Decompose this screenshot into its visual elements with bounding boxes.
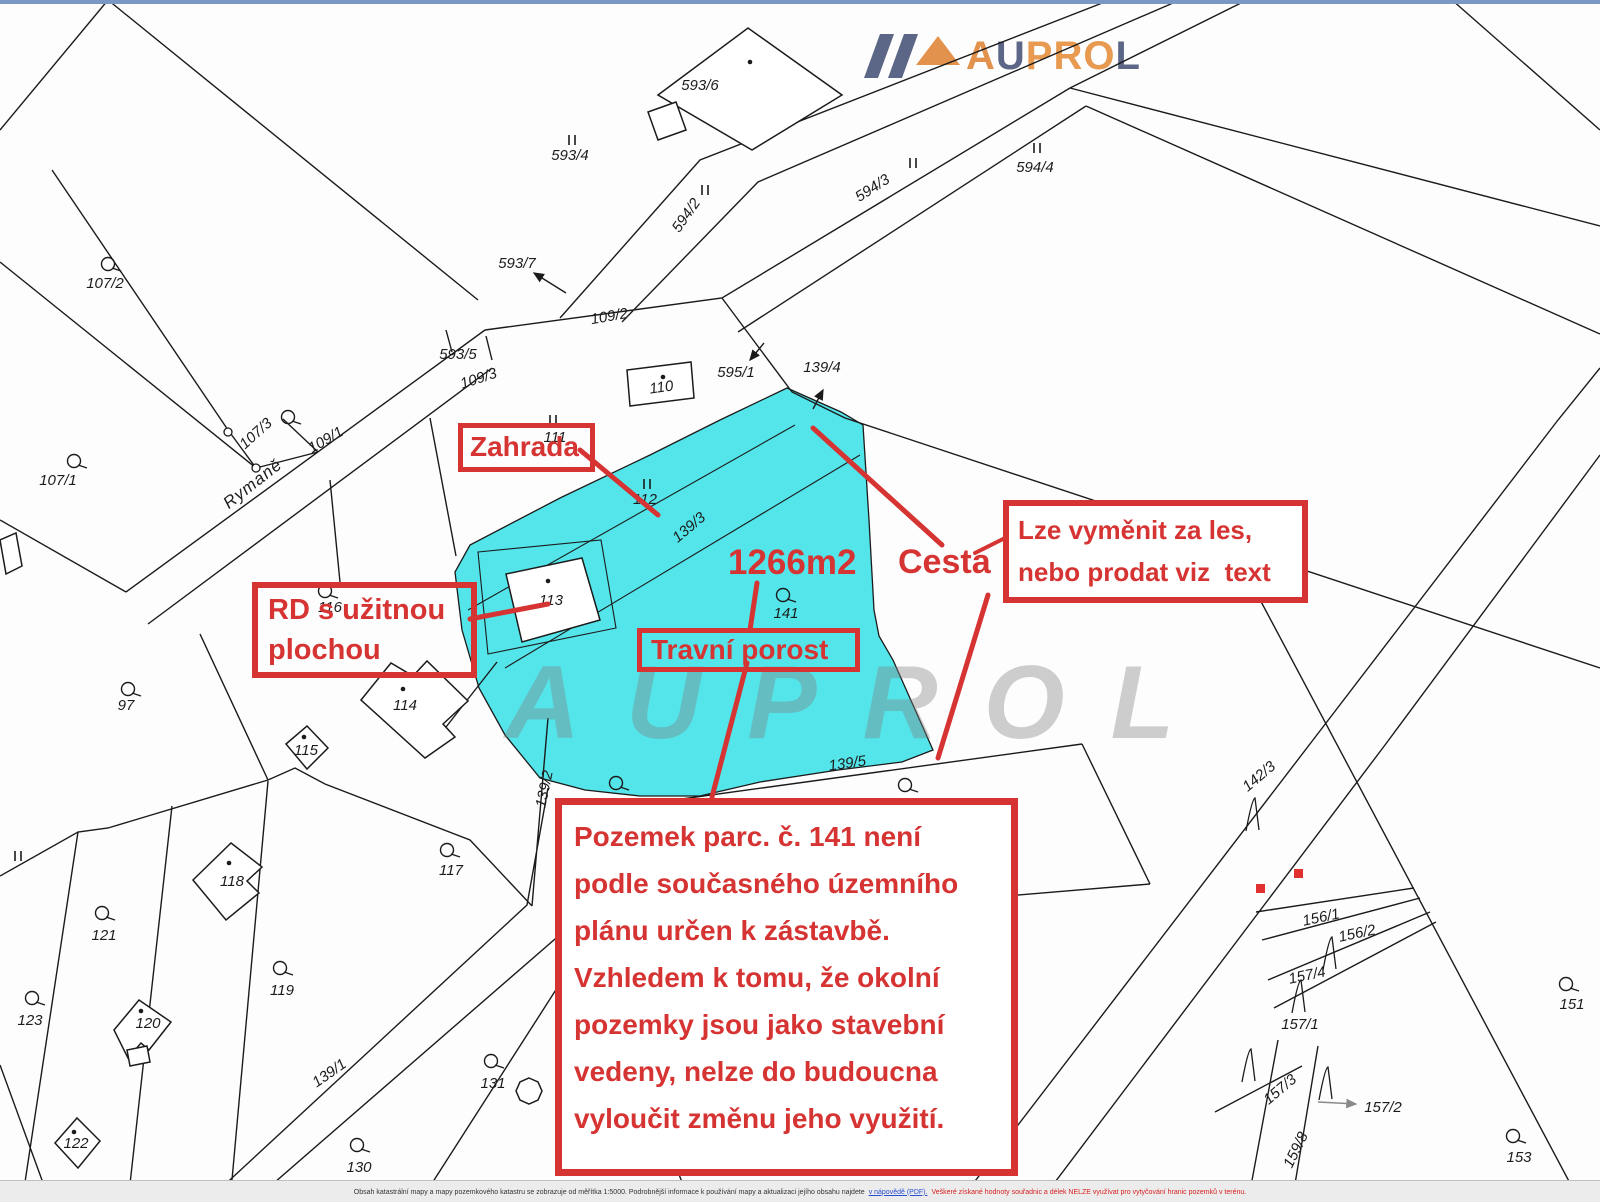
lze-vymenit-callout: Lze vyměnit za les, nebo prodat viz text xyxy=(1003,500,1308,603)
disclaimer-text: Obsah katastrální mapy a mapy pozemkovéh… xyxy=(354,1189,865,1196)
travni-porost-callout: Travní porost xyxy=(637,628,860,672)
disclaimer-bar: Obsah katastrální mapy a mapy pozemkovéh… xyxy=(0,1180,1600,1202)
red-callout-lines xyxy=(470,428,1005,797)
main-note-line: pozemky jsou jako stavební xyxy=(574,1001,1011,1048)
rd-line2: plochou xyxy=(268,630,471,670)
zahrada-label: Zahrada xyxy=(470,431,579,462)
help-pdf-link[interactable]: v nápovědě (PDF). xyxy=(869,1189,928,1196)
rd-line1: RD s užitnou xyxy=(268,590,471,630)
main-note-line: vyloučit změnu jeho využití. xyxy=(574,1095,1011,1142)
lze-line1: Lze vyměnit za les, xyxy=(1018,509,1302,551)
main-note-line: podle současného územního xyxy=(574,860,1011,907)
main-note-line: Vzhledem k tomu, že okolní xyxy=(574,954,1011,1001)
disclaimer-warning: Veškeré získané hodnoty souřadnic a déle… xyxy=(931,1189,1246,1196)
red-square-markers xyxy=(1256,869,1303,893)
main-note-line: plánu určen k zástavbě. xyxy=(574,907,1011,954)
zahrada-callout: Zahrada xyxy=(458,423,595,472)
main-note-line: Pozemek parc. č. 141 není xyxy=(574,813,1011,860)
main-note-line: vedeny, nelze do budoucna xyxy=(574,1048,1011,1095)
cadastral-map-page: AUPROL xyxy=(0,0,1600,1202)
travni-label: Travní porost xyxy=(651,634,828,665)
lze-line2: nebo prodat viz text xyxy=(1018,551,1302,593)
cesta-label: Cesta xyxy=(898,543,991,582)
main-note-box: Pozemek parc. č. 141 nenípodle současnéh… xyxy=(555,798,1018,1176)
rd-callout: RD s užitnou plochou xyxy=(252,582,477,678)
window-top-strip xyxy=(0,0,1600,4)
area-label: 1266m2 xyxy=(728,543,856,583)
